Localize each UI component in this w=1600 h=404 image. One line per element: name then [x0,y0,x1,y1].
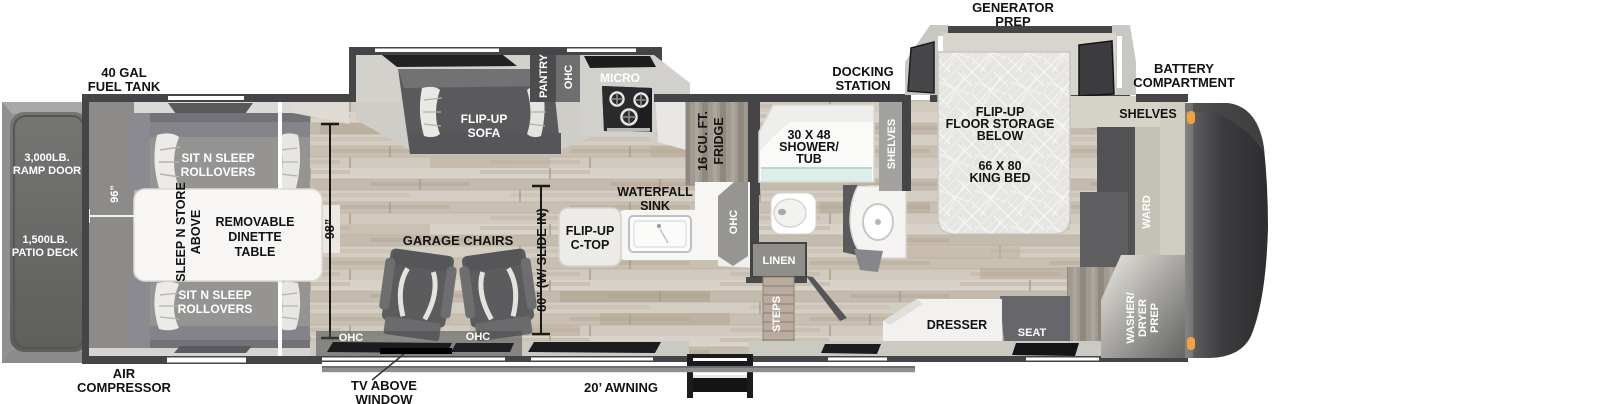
svg-text:PREP: PREP [995,14,1031,29]
svg-text:WARD: WARD [1141,195,1153,229]
svg-text:20’ AWNING: 20’ AWNING [584,380,658,395]
svg-text:16 CU. FT.: 16 CU. FT. [696,111,710,171]
svg-text:SIT N SLEEP: SIT N SLEEP [181,151,254,165]
svg-text:TUB: TUB [796,152,822,166]
svg-text:DOCKING: DOCKING [832,64,893,79]
svg-text:COMPARTMENT: COMPARTMENT [1133,75,1235,90]
svg-text:TABLE: TABLE [235,245,276,259]
svg-text:SHELVES: SHELVES [886,119,898,170]
svg-text:FLIP-UP: FLIP-UP [461,112,508,126]
svg-text:DRYER: DRYER [1137,299,1149,337]
svg-text:SINK: SINK [640,199,670,213]
svg-text:3,000LB.: 3,000LB. [24,152,69,164]
svg-text:SLEEP N STORE: SLEEP N STORE [174,182,188,282]
svg-text:KING BED: KING BED [969,171,1030,185]
svg-text:FRIDGE: FRIDGE [712,117,726,164]
svg-text:96”: 96” [109,185,121,203]
svg-text:RAMP DOOR: RAMP DOOR [13,165,81,177]
svg-text:WATERFALL: WATERFALL [617,185,693,199]
svg-text:OHC: OHC [339,332,364,344]
svg-text:BELOW: BELOW [977,129,1024,143]
svg-text:COMPRESSOR: COMPRESSOR [77,380,172,395]
svg-text:1,500LB.: 1,500LB. [22,234,67,246]
svg-text:PATIO DECK: PATIO DECK [12,247,78,259]
svg-text:LINEN: LINEN [763,255,796,267]
svg-text:PREP: PREP [1149,303,1161,333]
svg-text:DRESSER: DRESSER [927,318,987,332]
svg-text:WINDOW: WINDOW [355,392,413,404]
svg-text:WASHER/: WASHER/ [1125,292,1137,343]
svg-text:ROLLOVERS: ROLLOVERS [181,165,256,179]
svg-text:PANTRY: PANTRY [538,53,550,98]
svg-text:STATION: STATION [835,78,890,93]
svg-text:OHC: OHC [728,210,740,235]
svg-text:80” (W/ SLIDE IN): 80” (W/ SLIDE IN) [535,208,549,311]
svg-text:OHC: OHC [563,65,575,90]
svg-text:40 GAL: 40 GAL [101,65,147,80]
svg-text:FUEL TANK: FUEL TANK [88,79,161,94]
svg-text:SEAT: SEAT [1018,327,1047,339]
svg-text:C-TOP: C-TOP [571,238,610,252]
svg-text:GARAGE CHAIRS: GARAGE CHAIRS [403,233,514,248]
svg-text:MICRO: MICRO [600,71,640,85]
svg-text:OHC: OHC [466,331,491,343]
svg-text:ROLLOVERS: ROLLOVERS [178,302,253,316]
svg-text:REMOVABLE: REMOVABLE [216,215,295,229]
svg-text:STEPS: STEPS [771,296,783,332]
svg-text:AIR: AIR [113,366,136,381]
svg-text:SIT N SLEEP: SIT N SLEEP [178,288,251,302]
svg-text:GENERATOR: GENERATOR [972,0,1054,15]
svg-text:SOFA: SOFA [468,126,501,140]
svg-text:98”: 98” [323,219,337,239]
svg-text:DINETTE: DINETTE [228,230,281,244]
svg-text:BATTERY: BATTERY [1154,61,1214,76]
svg-text:SHELVES: SHELVES [1119,107,1176,121]
svg-text:FLIP-UP: FLIP-UP [566,224,615,238]
svg-text:ABOVE: ABOVE [189,210,203,254]
svg-text:TV ABOVE: TV ABOVE [351,378,417,393]
